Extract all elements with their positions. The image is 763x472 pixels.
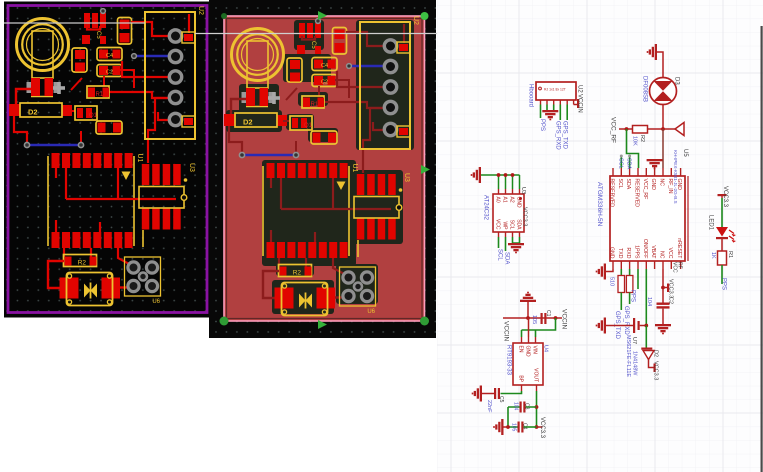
svg-text:GND: GND [650, 179, 656, 191]
svg-text:VCCIN: VCCIN [577, 94, 583, 113]
svg-text:GND: GND [609, 247, 615, 259]
svg-text:TXD: TXD [617, 248, 623, 259]
svg-text:105: 105 [511, 423, 517, 432]
svg-text:VIN: VIN [532, 346, 538, 355]
svg-text:R2: R2 [639, 135, 645, 142]
svg-text:A2: A2 [509, 197, 515, 203]
svg-text:U4: U4 [543, 345, 549, 352]
svg-text:C3: C3 [524, 403, 530, 410]
svg-text:VCC3.3: VCC3.3 [539, 417, 545, 439]
svg-text:LED1: LED1 [708, 215, 714, 231]
svg-text:PPS: PPS [630, 290, 636, 302]
svg-text:VCC3.3: VCC3.3 [722, 186, 728, 208]
svg-text:C5: C5 [498, 396, 504, 403]
svg-text:SDA: SDA [625, 179, 631, 190]
svg-text:VCC: VCC [495, 219, 501, 230]
svg-text:C4: C4 [522, 423, 528, 430]
svg-text:PPS: PPS [539, 119, 545, 131]
svg-text:VCC3.3: VCC3.3 [522, 207, 528, 226]
svg-text:VCC_RF: VCC_RF [610, 117, 617, 143]
svg-text:RJ 1x1 8x 12T: RJ 1x1 8x 12T [544, 88, 566, 92]
svg-text:NC: NC [659, 179, 665, 187]
svg-text:A0: A0 [495, 197, 501, 203]
svg-text:RXD: RXD [625, 248, 631, 259]
svg-text:nRESET: nRESET [676, 238, 682, 259]
svg-text:DF008SB: DF008SB [642, 76, 648, 102]
svg-text:1PPS: 1PPS [634, 245, 640, 259]
svg-text:SCL: SCL [618, 158, 624, 169]
svg-text:105: 105 [531, 315, 537, 324]
svg-text:SCL: SCL [497, 249, 503, 261]
svg-text:GND: GND [516, 197, 522, 209]
svg-text:ON/OFF: ON/OFF [642, 239, 648, 259]
svg-text:VCC: VCC [667, 248, 673, 259]
svg-text:SCL: SCL [617, 179, 623, 189]
svg-text:GPS_RXD: GPS_RXD [623, 306, 629, 335]
svg-text:22nF: 22nF [486, 400, 492, 413]
svg-text:EN: EN [518, 346, 524, 353]
svg-text:RF_IN: RF_IN [667, 179, 673, 194]
svg-text:U3: U3 [520, 187, 526, 194]
svg-text:PPS: PPS [721, 278, 727, 290]
svg-text:510: 510 [609, 277, 615, 286]
svg-text:VCCIN: VCCIN [503, 321, 510, 342]
svg-text:GND: GND [525, 346, 531, 358]
svg-text:C2: C2 [668, 297, 674, 304]
svg-text:SCL: SCL [509, 220, 515, 230]
svg-text:C1: C1 [545, 310, 551, 317]
svg-text:VCCIN: VCCIN [561, 309, 568, 330]
svg-text:A1: A1 [502, 197, 508, 203]
svg-text:BP: BP [518, 375, 524, 382]
svg-text:SDA: SDA [516, 219, 522, 230]
svg-text:NC: NC [659, 251, 665, 259]
svg-text:MS621FE-FL11E: MS621FE-FL11E [625, 335, 631, 377]
svg-text:RESERVED: RESERVED [609, 179, 615, 208]
svg-text:SDA: SDA [504, 252, 510, 264]
svg-text:10K: 10K [632, 136, 638, 146]
svg-text:WP: WP [502, 221, 508, 230]
svg-text:ATGM336H-5N: ATGM336H-5N [596, 182, 603, 227]
svg-text:SDA: SDA [626, 158, 632, 170]
svg-text:KH-IPEX-K501-JL-2G-B.S: KH-IPEX-K501-JL-2G-B.S [673, 150, 678, 204]
svg-text:GPS_TXD: GPS_TXD [562, 121, 568, 150]
svg-text:RT9193-33: RT9193-33 [506, 345, 512, 376]
svg-text:AT24C32: AT24C32 [483, 195, 489, 221]
svg-text:U2: U2 [577, 85, 583, 93]
svg-text:VCC_RF: VCC_RF [642, 179, 648, 200]
svg-text:1N4148W: 1N4148W [632, 351, 638, 376]
svg-text:Hbooard: Hbooard [528, 84, 534, 107]
svg-text:1K: 1K [710, 252, 716, 259]
svg-text:R1: R1 [727, 251, 733, 258]
svg-text:RF: RF [677, 262, 683, 269]
svg-text:RESERVED: RESERVED [634, 179, 640, 208]
svg-text:D2: D2 [653, 350, 659, 357]
svg-text:VCC3.3: VCC3.3 [653, 361, 659, 380]
svg-text:U5: U5 [682, 149, 688, 157]
svg-text:GPS_RXD: GPS_RXD [555, 121, 561, 150]
svg-text:VOUT: VOUT [533, 368, 539, 382]
svg-text:104: 104 [646, 297, 652, 306]
svg-text:104: 104 [513, 402, 519, 411]
svg-text:VCC3.3: VCC3.3 [668, 279, 674, 298]
svg-text:D3: D3 [674, 77, 680, 85]
svg-text:VBAT: VBAT [650, 245, 656, 259]
